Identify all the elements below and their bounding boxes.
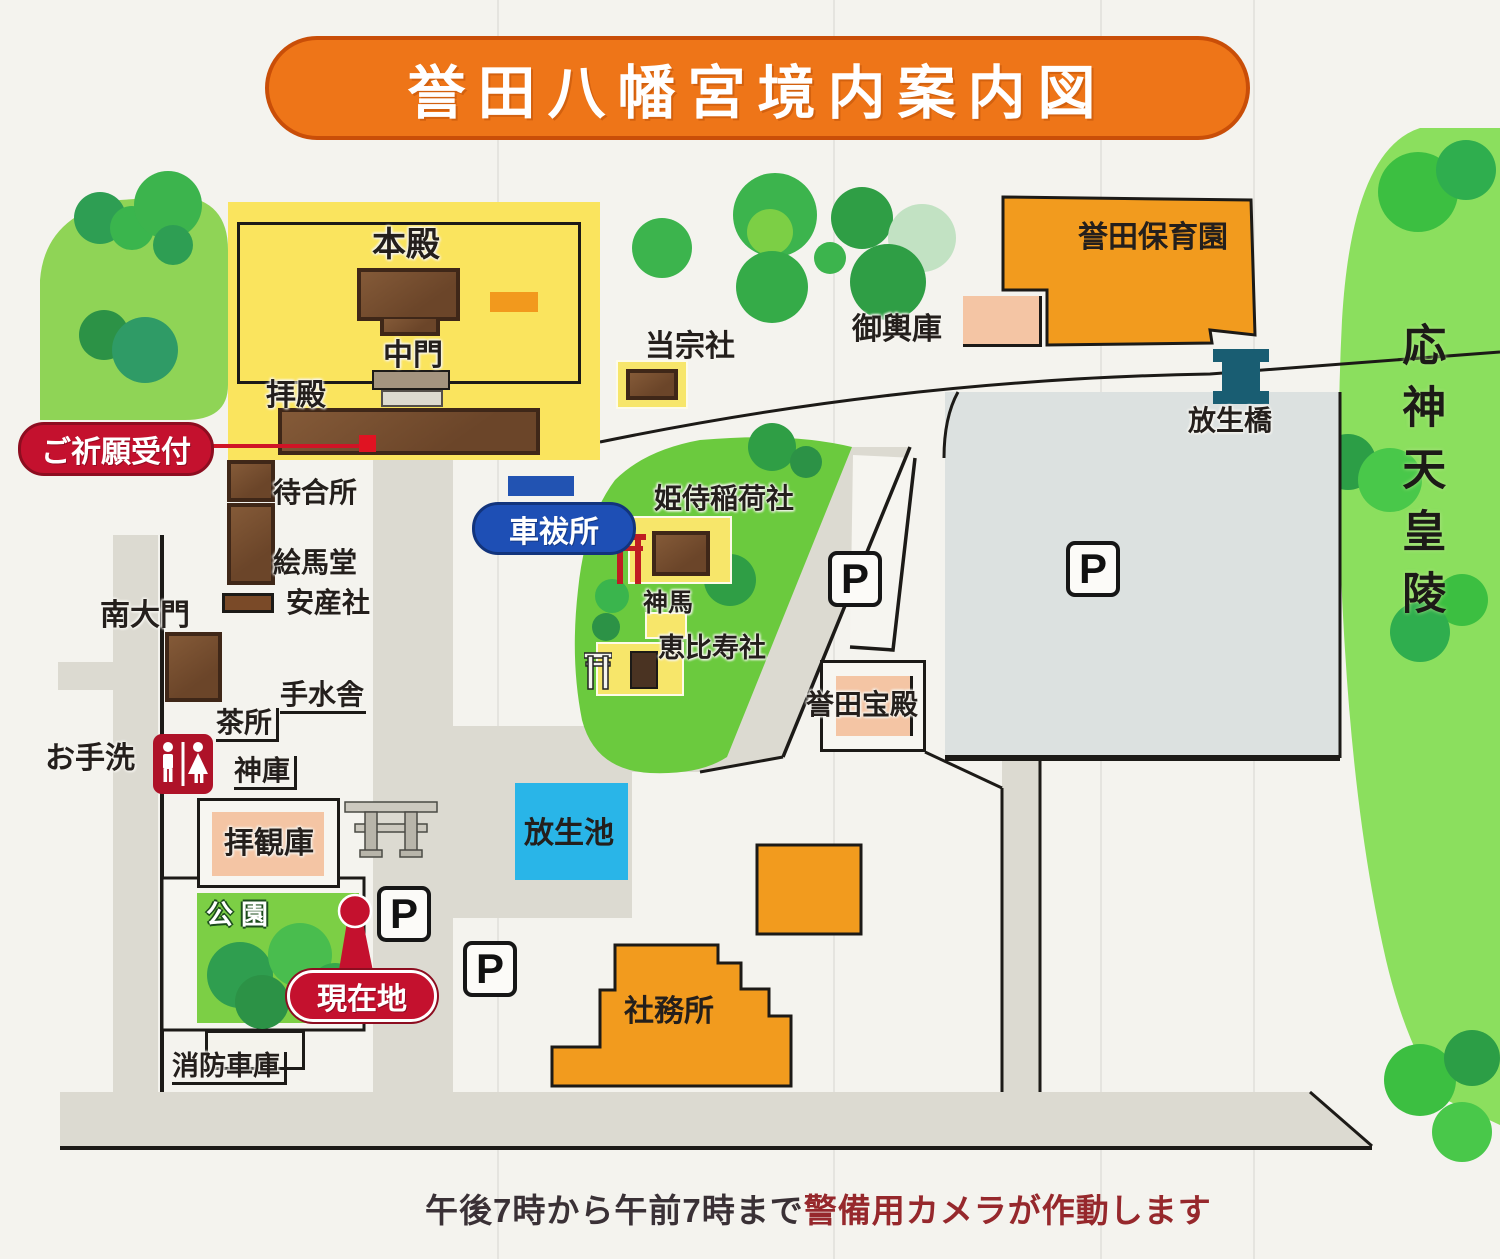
notice-time-text: 午後7時から午前7時まで	[425, 1192, 804, 1229]
right-road	[1002, 758, 1040, 1094]
chumon-gate-building	[372, 370, 450, 390]
hojo-bridge-label: 放生橋	[1188, 406, 1272, 435]
map-title-banner: 誉田八幡宮境内案内図	[265, 36, 1250, 140]
notice-camera-text: 警備用カメラが作動します	[804, 1192, 1212, 1229]
shinko-label: 神庫	[234, 756, 297, 790]
parking-letter: P	[1079, 545, 1107, 593]
nursery-label: 誉田保育園	[1048, 222, 1258, 254]
parking-sign: P	[463, 941, 517, 997]
emado-label: 絵馬堂	[273, 548, 357, 577]
shrine-map: P P P P 誉田八幡宮境内案内図 ご祈願受付 車祓所 現在地 本殿 中門 拝…	[0, 0, 1500, 1259]
car-purification-label: 車祓所	[509, 507, 599, 551]
current-location-badge: 現在地	[287, 970, 437, 1022]
chumon-gate-step	[381, 390, 443, 407]
anzansha-label: 安産社	[286, 588, 370, 617]
anzansha-building	[222, 593, 274, 613]
shamusho-label: 社務所	[624, 996, 714, 1028]
park-label: 公園	[206, 901, 276, 929]
fire-garage-label: 消防車庫	[172, 1052, 287, 1085]
parking-sign: P	[377, 886, 431, 942]
main-parking-lot	[945, 392, 1340, 758]
nandaimon-building	[165, 632, 222, 702]
parking-letter: P	[476, 945, 504, 993]
reception-point-square	[359, 435, 376, 452]
small-orange-structure	[490, 292, 538, 312]
machiaisho-label: 待合所	[273, 478, 357, 507]
inari-building	[652, 531, 710, 576]
mikoshiko-building	[963, 296, 1042, 347]
chadokoro-label: 茶所	[216, 708, 279, 742]
ebisu-building	[630, 651, 658, 689]
hojo-bridge-icon	[1213, 349, 1269, 404]
ojin-tomb-label: 応神天皇陵	[1396, 322, 1442, 632]
bottom-road	[60, 1092, 1372, 1146]
car-purification-badge: 車祓所	[472, 502, 636, 555]
honden-building	[357, 268, 460, 321]
restroom-icon	[153, 734, 213, 794]
shinme-label: 神馬	[643, 590, 693, 616]
map-title: 誉田八幡宮境内案内図	[407, 46, 1107, 130]
tosousha-label: 当宗社	[645, 331, 735, 363]
emado-building	[227, 503, 275, 585]
tosousha-building	[626, 369, 678, 400]
white-torii-icon	[584, 650, 612, 690]
parking-sign: P	[1066, 541, 1120, 597]
parking-letter: P	[841, 555, 869, 603]
car-purification-structure	[508, 476, 574, 496]
mikoshiko-label: 御輿庫	[852, 314, 942, 346]
prayer-reception-badge: ご祈願受付	[18, 422, 214, 476]
chumon-label: 中門	[383, 340, 443, 372]
prayer-reception-label: ご祈願受付	[41, 427, 191, 471]
inari-label: 姫侍稲荷社	[654, 484, 794, 513]
orange-annex-building	[757, 845, 861, 934]
nandaimon-label: 南大門	[100, 600, 190, 632]
machiaisho-building	[227, 460, 275, 502]
haiden-label: 拝殿	[266, 380, 326, 412]
honden-label: 本殿	[372, 228, 440, 264]
reception-pointer-line	[205, 444, 363, 448]
security-notice: 午後7時から午前7時まで警備用カメラが作動します	[425, 1184, 1212, 1232]
left-branch-road	[58, 662, 115, 690]
parking-letter: P	[390, 890, 418, 938]
parking-sign: P	[828, 551, 882, 607]
hoden-label: 誉田宝殿	[806, 690, 918, 719]
current-location-label: 現在地	[317, 974, 407, 1018]
ebisu-label: 恵比寿社	[658, 634, 766, 662]
temizusha-label: 手水舎	[280, 680, 366, 714]
honden-building-step	[380, 319, 440, 336]
otearai-label: お手洗	[45, 743, 135, 775]
haikanko-label: 拝観庫	[224, 828, 314, 860]
current-location-dot	[339, 895, 371, 927]
center-tree-cluster	[632, 173, 956, 323]
pond-label: 放生池	[524, 818, 614, 850]
